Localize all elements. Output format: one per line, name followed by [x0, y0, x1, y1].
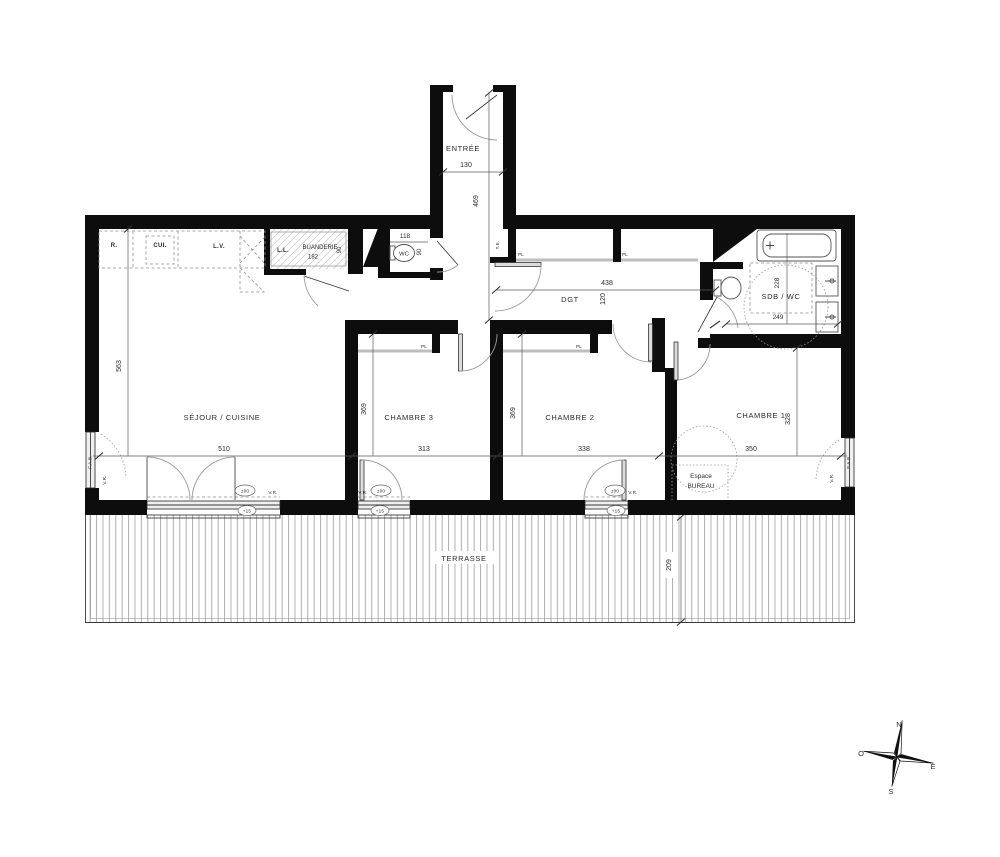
bathroom-layout-zone [750, 263, 812, 313]
living-window-type: P.F. [205, 509, 213, 514]
office-label-line1: Espace [690, 473, 712, 480]
right-window-shutter: V.R. [829, 473, 834, 482]
living-hall-door-leaf [495, 263, 541, 267]
closet-label-1: PL [518, 252, 524, 257]
entry-length-dim: 469 [473, 195, 480, 207]
laundry-door-dim: 90 [337, 246, 343, 253]
compass-south: S [888, 787, 893, 796]
closet-label-3: PL [421, 344, 427, 349]
bedroom1-door-arc [678, 344, 710, 380]
duct-triangle-bathroom [713, 229, 757, 262]
office-nook: Espace BUREAU [671, 426, 737, 500]
bedroom3-label: CHAMBRE 3 [384, 413, 433, 422]
compass-north: N [896, 720, 901, 729]
floor-plan-svg: TERRASSE 209 [0, 0, 1000, 857]
right-wall [841, 229, 855, 438]
living-label: SÉJOUR / CUISINE [184, 413, 261, 422]
bedroom3-width-dim: 313 [418, 446, 430, 453]
wc-door-leaf [437, 241, 458, 265]
living-width-dim: 510 [218, 446, 230, 453]
laundry-label: BUANDERIE [302, 245, 337, 251]
laundry-door-leaf [304, 276, 349, 291]
office-label-line2: BUREAU [687, 483, 714, 490]
electrical-panel-label: T.E. [495, 241, 500, 250]
kitchen-corner-unit [240, 268, 264, 292]
cooktop [146, 236, 174, 264]
laundry-door-arc [304, 276, 318, 306]
hall-label: DGT [561, 295, 579, 304]
bedroom3-window-type: P.F. [395, 509, 403, 514]
bathroom-height-dim: 228 [774, 277, 781, 288]
compass-east: E [930, 762, 935, 771]
living-bedroom3-partition [345, 320, 358, 500]
bedroom3-window-shutter: V.R. [358, 490, 367, 495]
laundry-area: 182 [308, 255, 319, 261]
entry-corridor-wall-right [503, 85, 516, 229]
right-window-swing [816, 440, 839, 480]
duct-triangle-wc [363, 228, 378, 267]
bedroom2-right-wall-lower [665, 368, 677, 500]
bedroom2-door-leaf [649, 324, 653, 361]
living-window-shutter: V.R. [268, 490, 277, 495]
bedroom2-level-15: +15 [612, 509, 621, 514]
bedroom1-height-dim: 328 [785, 413, 792, 425]
bedroom2-right-wall-upper [652, 318, 665, 372]
bedroom1-label: CHAMBRE 1 [736, 411, 785, 420]
entry-corridor-wall-left [430, 85, 443, 238]
bedroom3-top-wall [345, 320, 458, 334]
bathroom-toilet [721, 277, 741, 299]
bedroom2-top-wall [490, 320, 612, 334]
left-window-type: F.A.B. [88, 455, 93, 468]
bedroom2-label: CHAMBRE 2 [545, 413, 594, 422]
top-wall-left [85, 215, 430, 229]
hall-length-dim: 438 [601, 280, 613, 287]
living-height-dim: 563 [116, 360, 123, 372]
wc-width-dim: 118 [400, 233, 411, 240]
bathroom-width-dim: 249 [773, 314, 784, 321]
hall-width-dim: 120 [600, 293, 607, 305]
top-wall-right [516, 215, 855, 229]
wc-wall [378, 229, 390, 278]
entry-width-dim: 130 [460, 162, 472, 169]
left-wall [85, 229, 99, 432]
bedroom2-height-dim: 369 [510, 407, 517, 419]
bedroom1-top-wall [710, 334, 841, 348]
right-window-type: F.A.B. [846, 455, 851, 468]
bedroom2-window-type: P.F. [593, 509, 601, 514]
french-door-left-arc [147, 457, 190, 500]
bedroom2-door-arc [613, 324, 651, 362]
terrace-label: TERRASSE [441, 554, 486, 563]
bathroom-wall [700, 262, 713, 300]
terrace-decking [89, 515, 851, 622]
bedroom3-height-dim: 369 [361, 403, 368, 415]
french-door-right-arc [192, 457, 235, 500]
cooktop-label: CUI. [153, 243, 166, 249]
washer-label: L.L. [277, 248, 289, 254]
bedroom2-width-dim: 338 [578, 446, 590, 453]
bedroom1-door-leaf [674, 342, 678, 380]
living-hall-door-arc [495, 265, 541, 311]
bedroom3-bedroom2-partition [490, 320, 503, 500]
terrace-depth-dim: 209 [666, 559, 673, 571]
bottom-wall [85, 500, 147, 515]
kitchen-fixtures: R. CUI. L.V. L.L. BUANDERIE 182 90 [99, 229, 348, 292]
wc-label: WC [399, 252, 409, 258]
compass-rose: N E S O [858, 716, 939, 796]
closet-divider [613, 229, 621, 262]
living-level-15: +15 [243, 509, 252, 514]
entry-label: ENTRÉE [446, 144, 480, 153]
closet-label-2: PL [622, 252, 628, 257]
compass-west: O [858, 749, 864, 758]
closet-label-4: PL [576, 344, 582, 349]
bedroom3-level-15: +15 [376, 509, 385, 514]
bathroom-label: SDB / WC [762, 292, 801, 301]
living-level-0: ±00 [241, 489, 249, 494]
fridge-label: R. [111, 243, 118, 249]
bedroom2-level-0: ±00 [611, 489, 619, 494]
dishwasher-label: L.V. [213, 244, 225, 250]
entry-door-arc [452, 95, 497, 140]
floor-plan-page: TERRASSE 209 [0, 0, 1000, 857]
bedroom3-door-leaf [459, 334, 463, 371]
left-window-shutter: V.R. [102, 475, 107, 484]
bedroom1-width-dim: 350 [745, 446, 757, 453]
bathroom-door-leaf [698, 297, 717, 332]
terrace: TERRASSE 209 [86, 514, 855, 626]
bedroom2-window-shutter: V.R. [628, 490, 637, 495]
wc-door-dim: 90 [417, 248, 423, 255]
entry-door-leaf [466, 95, 497, 119]
bedroom3-level-0: ±00 [377, 489, 385, 494]
